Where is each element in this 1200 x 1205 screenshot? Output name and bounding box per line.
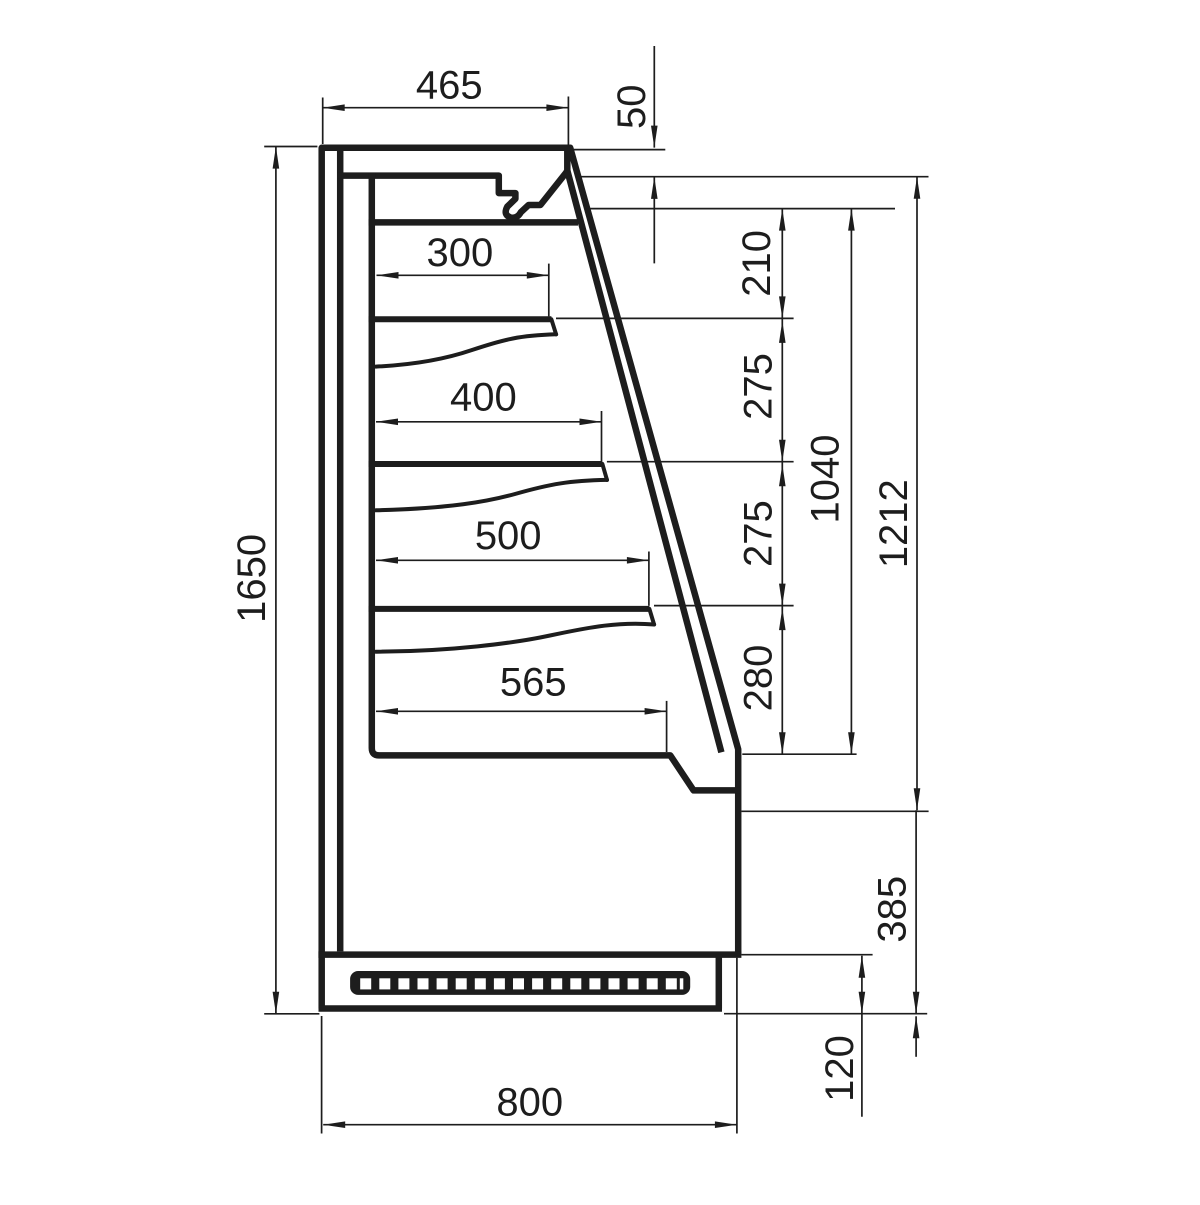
svg-text:1040: 1040 <box>804 435 848 524</box>
svg-text:400: 400 <box>450 376 517 420</box>
svg-text:385: 385 <box>871 876 915 943</box>
svg-text:120: 120 <box>818 1035 862 1102</box>
svg-text:1212: 1212 <box>872 479 916 568</box>
svg-text:210: 210 <box>735 230 779 297</box>
svg-text:280: 280 <box>737 645 781 712</box>
svg-text:800: 800 <box>496 1081 563 1125</box>
svg-text:275: 275 <box>737 500 781 567</box>
svg-text:500: 500 <box>475 514 542 558</box>
svg-text:1650: 1650 <box>230 534 274 623</box>
svg-text:50: 50 <box>610 84 654 129</box>
svg-text:275: 275 <box>737 353 781 420</box>
svg-text:465: 465 <box>416 64 483 108</box>
svg-text:565: 565 <box>500 660 567 704</box>
svg-text:300: 300 <box>427 231 494 275</box>
